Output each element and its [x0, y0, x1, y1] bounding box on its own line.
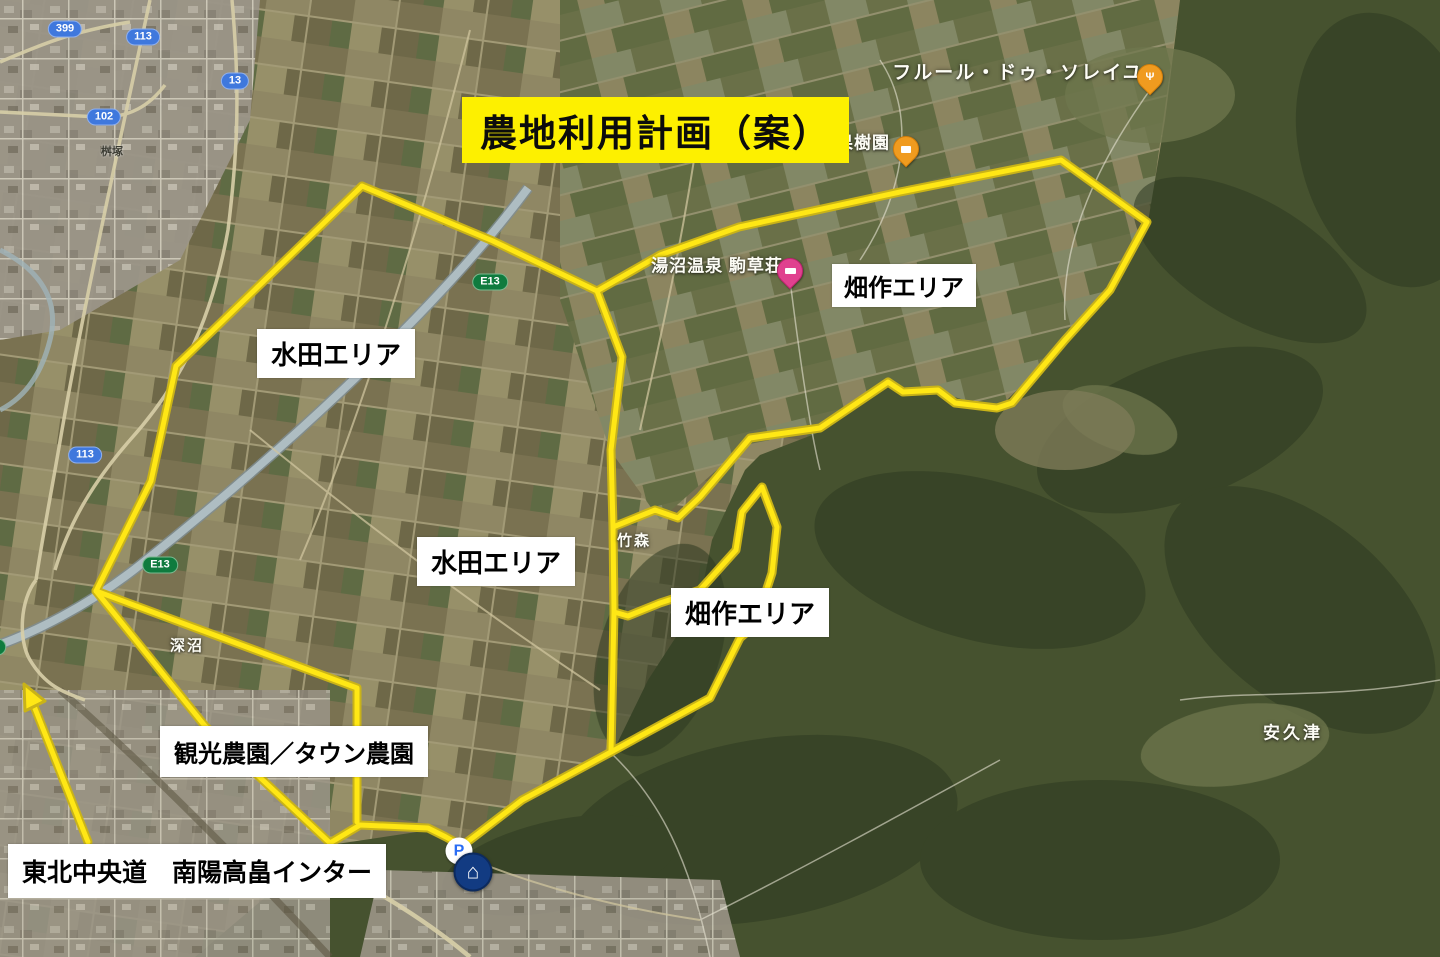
map-canvas[interactable]: フルール・ドゥ・ソレイユ 漆山果樹園 湯沼温泉 駒草荘 竹森 深沼 安久津 桝塚… — [0, 0, 1440, 957]
fork-knife-icon: Ψ — [1138, 65, 1162, 89]
label-expressway-interchange: 東北中央道 南陽高畠インター — [8, 844, 386, 898]
route-shield-102: 102 — [87, 109, 121, 126]
home-icon[interactable]: ⌂ — [454, 853, 493, 892]
place-label-akutsu: 安久津 — [1263, 719, 1323, 744]
route-shield-113-top: 113 — [126, 29, 160, 46]
route-shield-e13-upper: E13 — [472, 274, 508, 291]
route-shield-e13-lower: E13 — [142, 557, 178, 574]
place-label-fukanuma: 深沼 — [170, 635, 204, 656]
cafe-icon — [894, 137, 918, 161]
area-label-field-crop-upper: 畑作エリア — [832, 264, 976, 307]
area-label-tourist-farm: 観光農園／タウン農園 — [160, 726, 428, 777]
route-shield-113-mid: 113 — [68, 447, 102, 464]
area-label-paddy-lower: 水田エリア — [417, 537, 575, 586]
area-label-paddy-upper: 水田エリア — [257, 329, 415, 378]
place-label-fleur-du-soleil: フルール・ドゥ・ソレイユ — [892, 58, 1144, 85]
place-label-takemori: 竹森 — [617, 530, 651, 551]
route-shield-399: 399 — [48, 21, 82, 38]
bed-icon — [778, 259, 802, 283]
area-label-field-crop-lower: 畑作エリア — [671, 588, 829, 637]
route-shield-13: 13 — [221, 73, 249, 90]
place-label-yunuma-onsen: 湯沼温泉 駒草荘 — [651, 252, 783, 277]
page-title: 農地利用計画（案） — [462, 97, 849, 163]
place-label-masuzuka: 桝塚 — [101, 143, 123, 159]
